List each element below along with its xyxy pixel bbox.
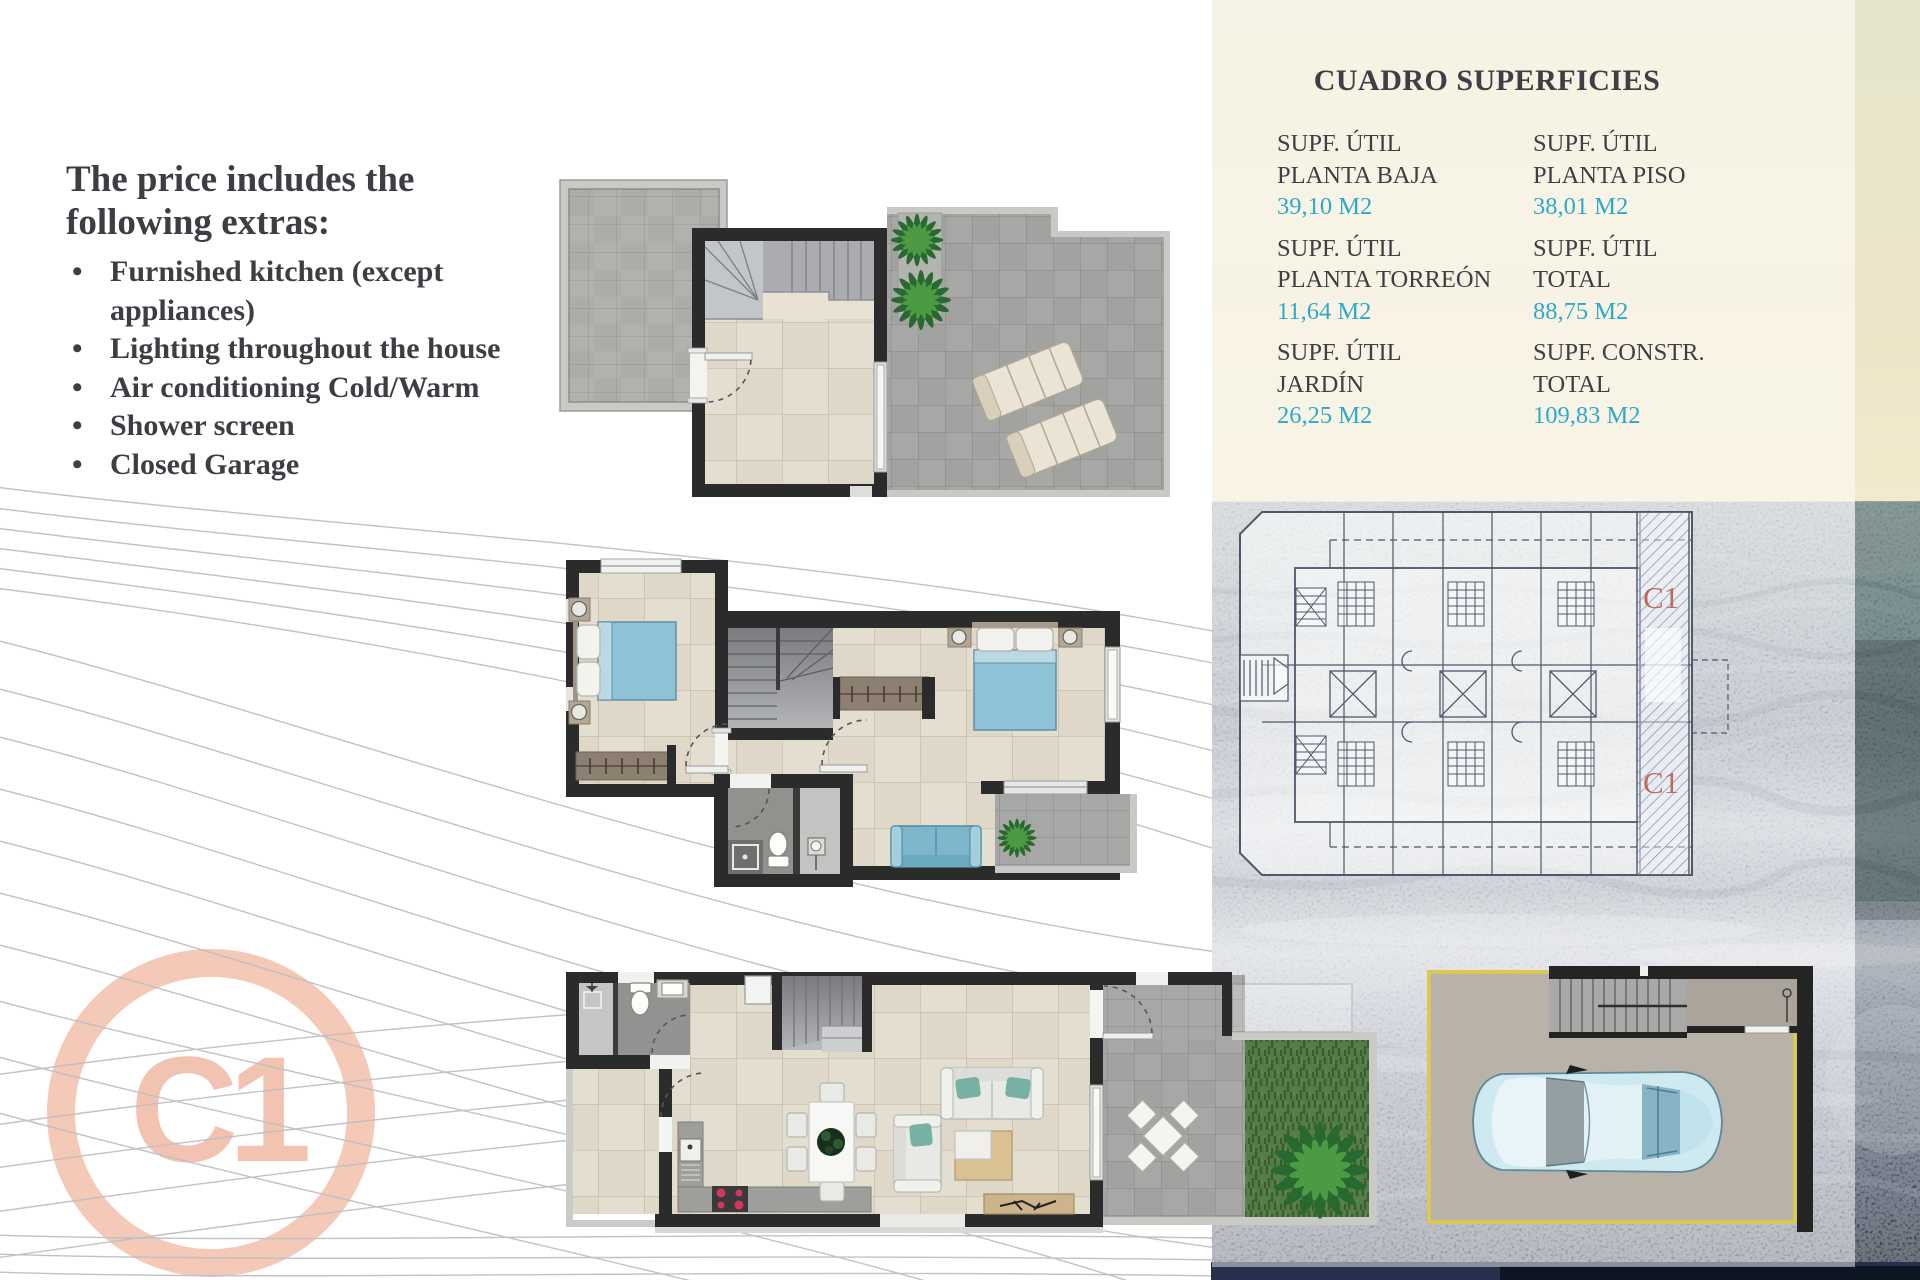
svg-text:C1: C1 [1643,765,1679,800]
svg-text:C1: C1 [1643,580,1679,615]
svg-text:C1: C1 [130,1025,308,1193]
